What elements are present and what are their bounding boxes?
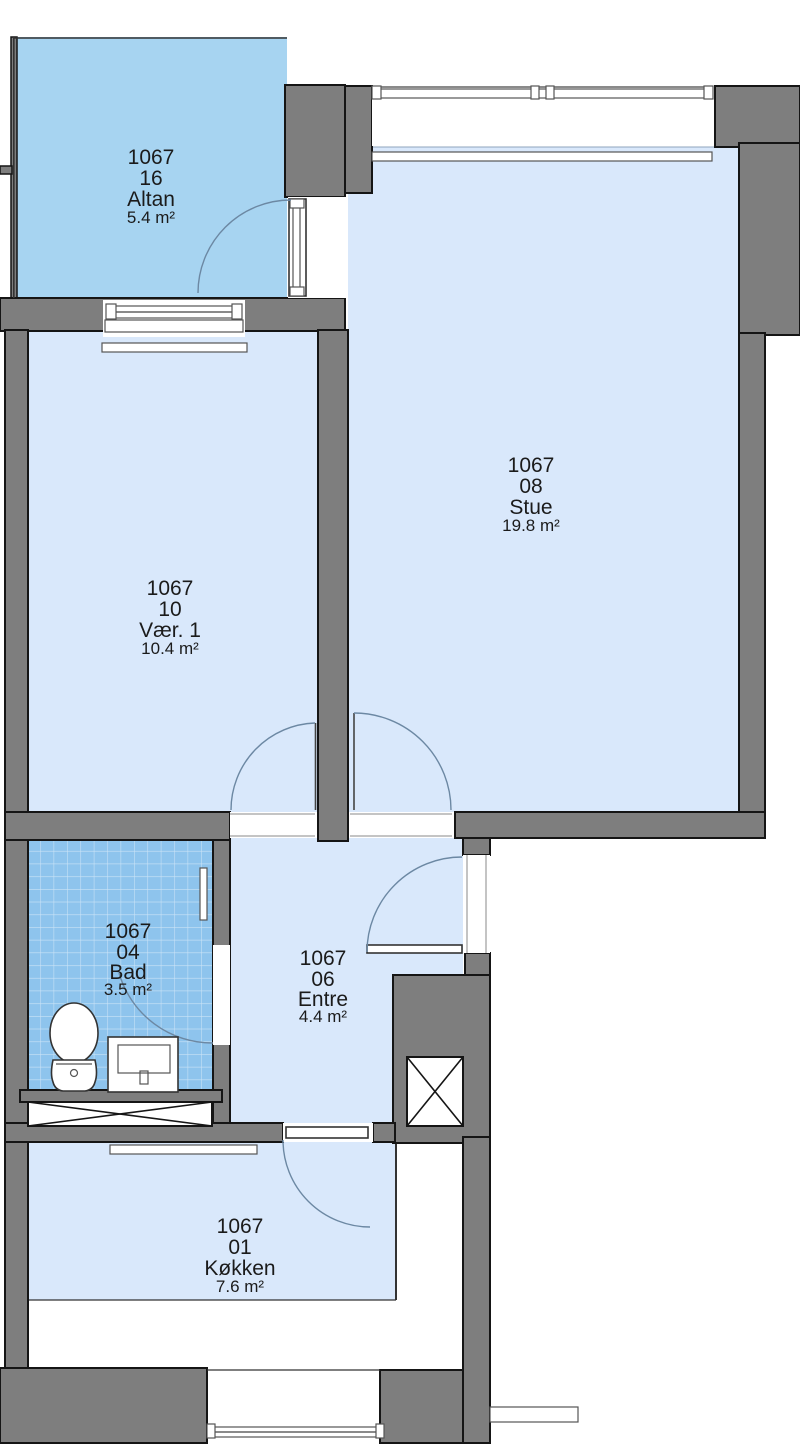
wall-window-left-pier — [345, 86, 372, 193]
entre-area: 4.4 m² — [299, 1007, 348, 1026]
stue-window-cap-right — [704, 86, 713, 99]
toilet-fixture — [50, 1003, 98, 1091]
wall-stue-bottom — [455, 812, 765, 838]
bottom-window-cap-right — [376, 1424, 384, 1438]
sink-vanity-fixture — [108, 1037, 178, 1092]
vaer1-unit: 1067 — [147, 577, 194, 600]
entre-unit: 1067 — [300, 947, 347, 970]
bad-door-opening — [213, 945, 230, 1045]
bottom-window-cap-left — [207, 1424, 215, 1438]
altan-door-cap-top — [290, 199, 304, 208]
altan-door-cap-bottom — [290, 287, 304, 296]
stue-area: 19.8 m² — [502, 516, 560, 535]
stue-number: 08 — [519, 475, 542, 498]
vaer1-number: 10 — [158, 598, 181, 621]
wall-koekken-top-right — [373, 1123, 395, 1142]
floor-plan-page: 1067 16 Altan 5.4 m² 1067 08 Stue 19.8 m… — [0, 0, 800, 1452]
wall-vaer1-stue — [318, 330, 348, 841]
shaft-symbol — [407, 1057, 463, 1126]
stue-unit: 1067 — [508, 454, 555, 477]
altan-door-panel — [293, 204, 300, 291]
stue-floor — [348, 147, 739, 812]
entrance-door-leaf — [367, 945, 462, 953]
koekken-unit: 1067 — [217, 1215, 264, 1238]
wall-stue-right — [739, 333, 765, 814]
koekken-area: 7.6 m² — [216, 1277, 265, 1296]
stue-window-cap-left — [372, 86, 381, 99]
wall-entry-top — [463, 838, 490, 855]
vaer1-window-cap-left — [106, 304, 116, 319]
vaer1-window-sill — [105, 320, 243, 332]
koekken-radiator — [110, 1145, 257, 1154]
wall-balcony-right — [285, 85, 345, 197]
balcony-rail-stub — [0, 166, 12, 174]
stue-door-opening — [350, 812, 452, 838]
wall-top-right-b — [739, 143, 800, 335]
wall-right-column — [463, 1137, 490, 1443]
stue-window-mullion-left — [531, 86, 539, 99]
vaer1-floor — [28, 330, 318, 812]
stue-window-glazing — [380, 89, 705, 98]
altan-unit: 1067 — [128, 146, 175, 169]
vaer1-radiator — [102, 343, 247, 352]
koekken-number: 01 — [228, 1236, 251, 1259]
vaer1-window-cap-right — [232, 304, 242, 319]
vaer1-area: 10.4 m² — [141, 639, 199, 658]
koekken-door-leaf — [286, 1127, 368, 1138]
stue-window-mullion-right — [546, 86, 554, 99]
bad-area: 3.5 m² — [104, 980, 153, 999]
exterior-ledge-bar — [490, 1407, 578, 1422]
wall-outer-left — [5, 330, 28, 1370]
wall-vaer1-bottom — [5, 812, 230, 840]
floor-plan-drawing: 1067 16 Altan 5.4 m² 1067 08 Stue 19.8 m… — [0, 0, 800, 1452]
wall-bottom-left-block — [0, 1368, 207, 1443]
stue-radiator — [372, 152, 712, 161]
altan-area: 5.4 m² — [127, 208, 176, 227]
bad-door-leaf — [200, 868, 207, 920]
vaer1-door-opening — [230, 812, 315, 838]
wardrobe-symbol — [28, 1102, 212, 1126]
bad-unit: 1067 — [105, 920, 152, 943]
altan-number: 16 — [139, 167, 162, 190]
wall-top-right-a — [715, 86, 800, 147]
wall-bottom-right-block — [380, 1370, 463, 1443]
